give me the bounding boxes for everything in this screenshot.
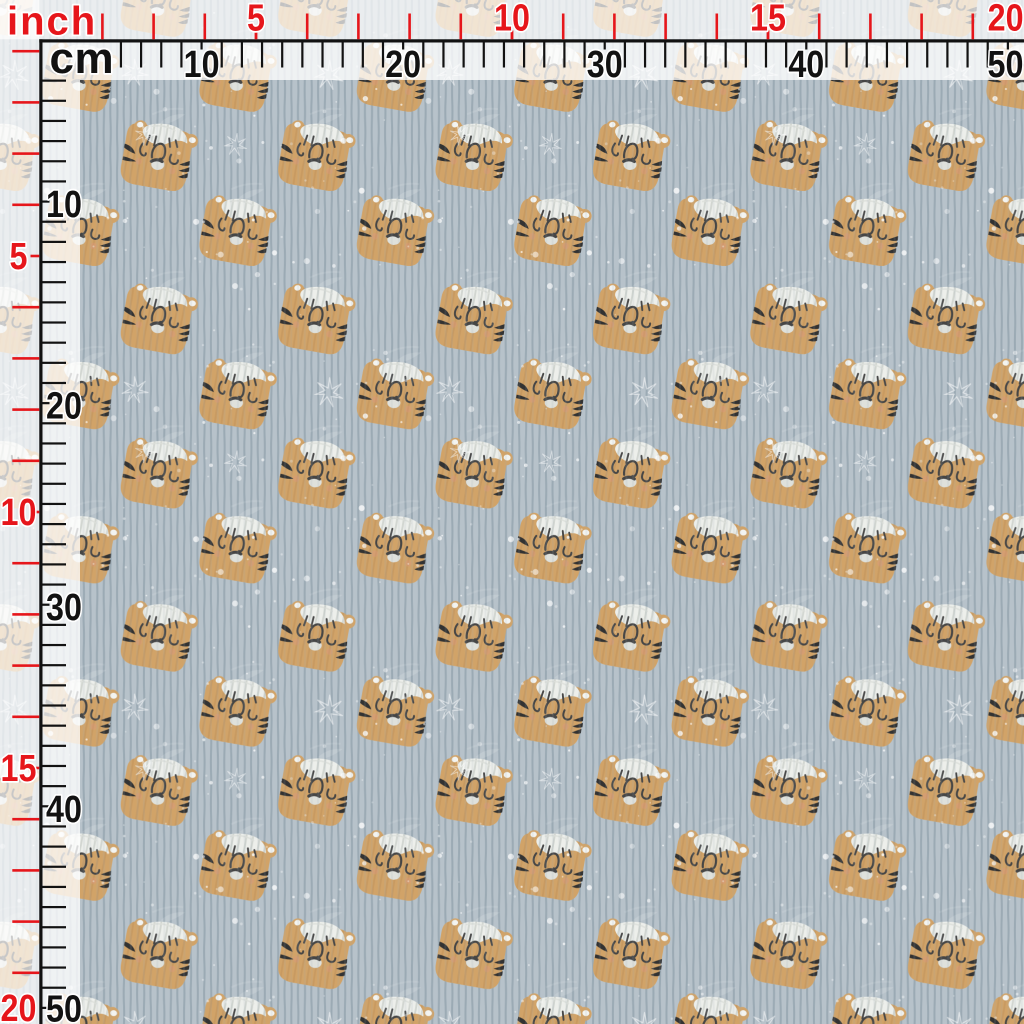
svg-text:20: 20 (1, 988, 37, 1024)
svg-text:10: 10 (1, 492, 37, 534)
svg-text:5: 5 (10, 236, 28, 278)
svg-text:20: 20 (46, 385, 82, 427)
svg-text:15: 15 (1, 748, 37, 790)
svg-text:40: 40 (46, 788, 82, 830)
svg-text:40: 40 (788, 44, 824, 86)
svg-text:cm: cm (50, 34, 115, 83)
svg-text:5: 5 (247, 0, 265, 39)
svg-text:30: 30 (587, 44, 623, 86)
svg-text:20: 20 (988, 0, 1024, 39)
svg-text:10: 10 (184, 44, 220, 86)
svg-text:50: 50 (988, 44, 1024, 86)
svg-text:50: 50 (46, 988, 82, 1024)
svg-text:20: 20 (385, 44, 421, 86)
svg-text:30: 30 (46, 587, 82, 629)
svg-text:10: 10 (494, 0, 530, 39)
svg-text:10: 10 (46, 184, 82, 226)
svg-text:15: 15 (750, 0, 786, 39)
